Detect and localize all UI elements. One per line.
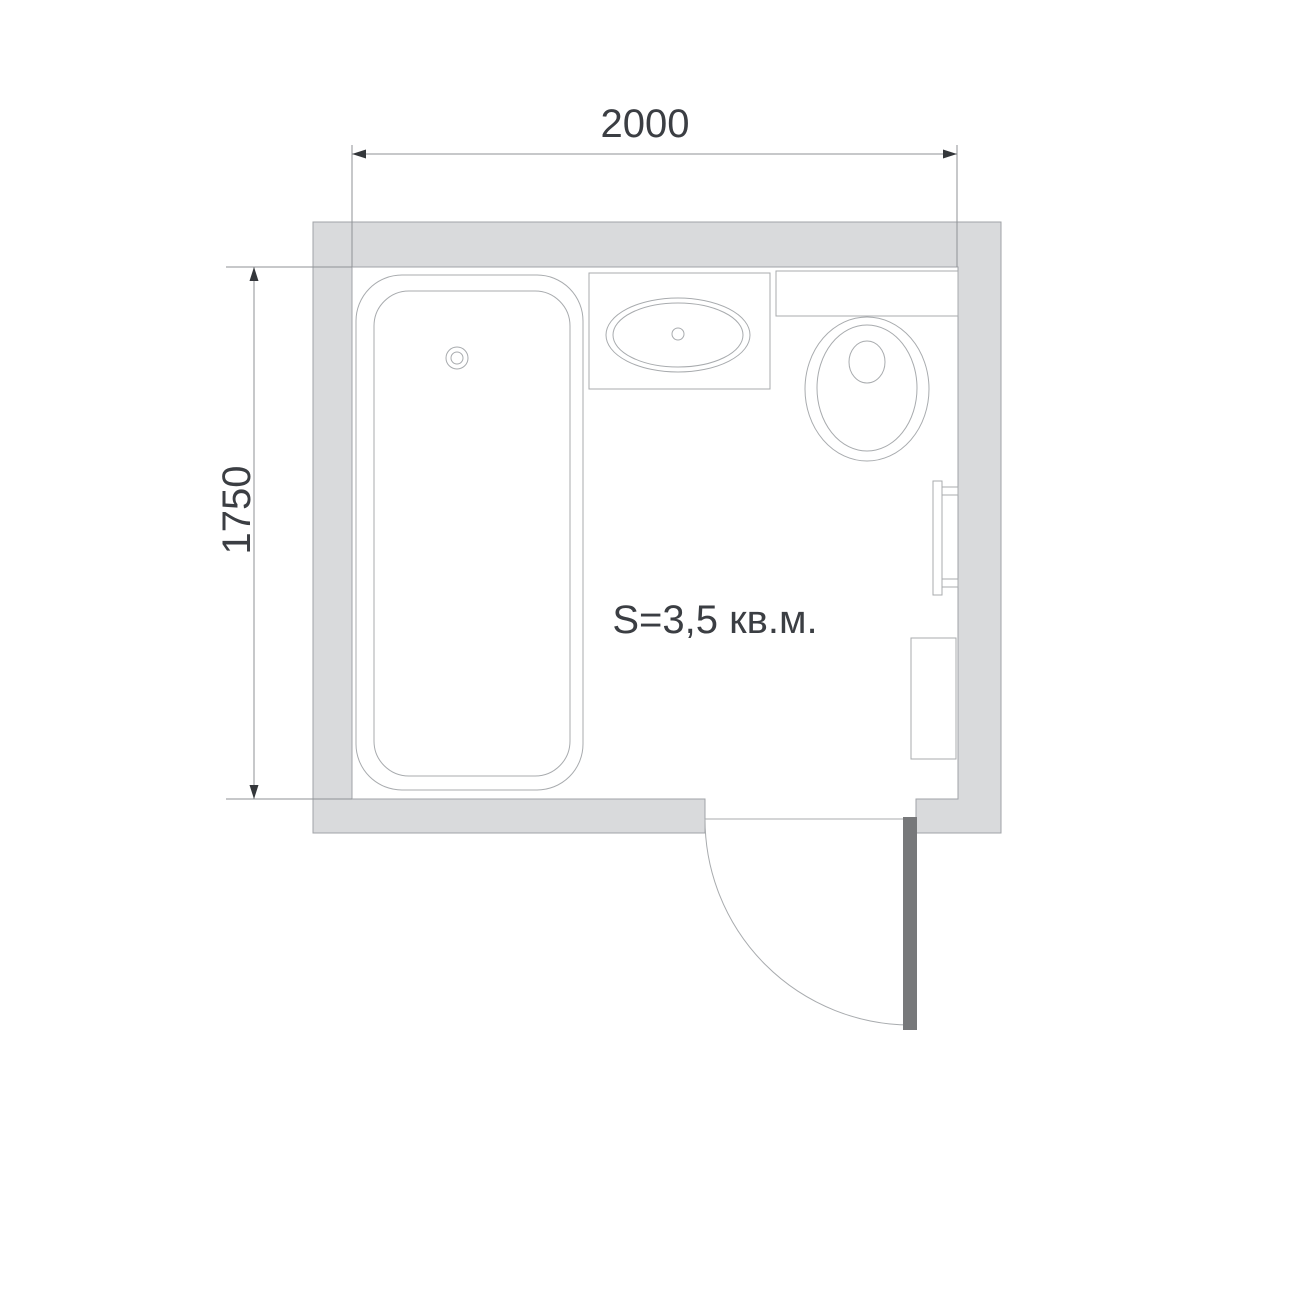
arrow-up-icon: [250, 267, 259, 281]
toilet-cistern: [776, 271, 958, 316]
toilet-bowl: [805, 317, 929, 461]
arrow-down-icon: [250, 785, 259, 799]
towel-rail-bar: [933, 481, 942, 595]
towel-rail-icon: [933, 481, 958, 595]
arrow-left-icon: [352, 150, 366, 159]
toilet-icon: [776, 271, 958, 461]
bathtub-icon: [356, 275, 583, 790]
floor-plan-drawing: [0, 0, 1300, 1301]
door-swing-arc: [705, 819, 911, 1025]
cabinet-outline: [911, 638, 956, 759]
arrow-right-icon: [943, 150, 957, 159]
towel-rail-bracket-top: [942, 487, 958, 495]
door-leaf: [903, 817, 917, 1030]
dimension-height-label: 1750: [217, 410, 257, 610]
dimension-width-label: 2000: [545, 104, 745, 144]
floor-plan-canvas: 2000 1750 S=3,5 кв.м.: [0, 0, 1300, 1301]
toilet-flush-icon: [849, 341, 885, 383]
towel-rail-bracket-bottom: [942, 579, 958, 587]
bathtub-inner-basin: [374, 291, 570, 776]
sink-vanity-icon: [589, 273, 770, 389]
toilet-bowl-inner: [817, 325, 917, 451]
door-icon: [705, 817, 917, 1030]
cabinet-icon: [911, 638, 956, 759]
room-area-label: S=3,5 кв.м.: [565, 600, 865, 640]
